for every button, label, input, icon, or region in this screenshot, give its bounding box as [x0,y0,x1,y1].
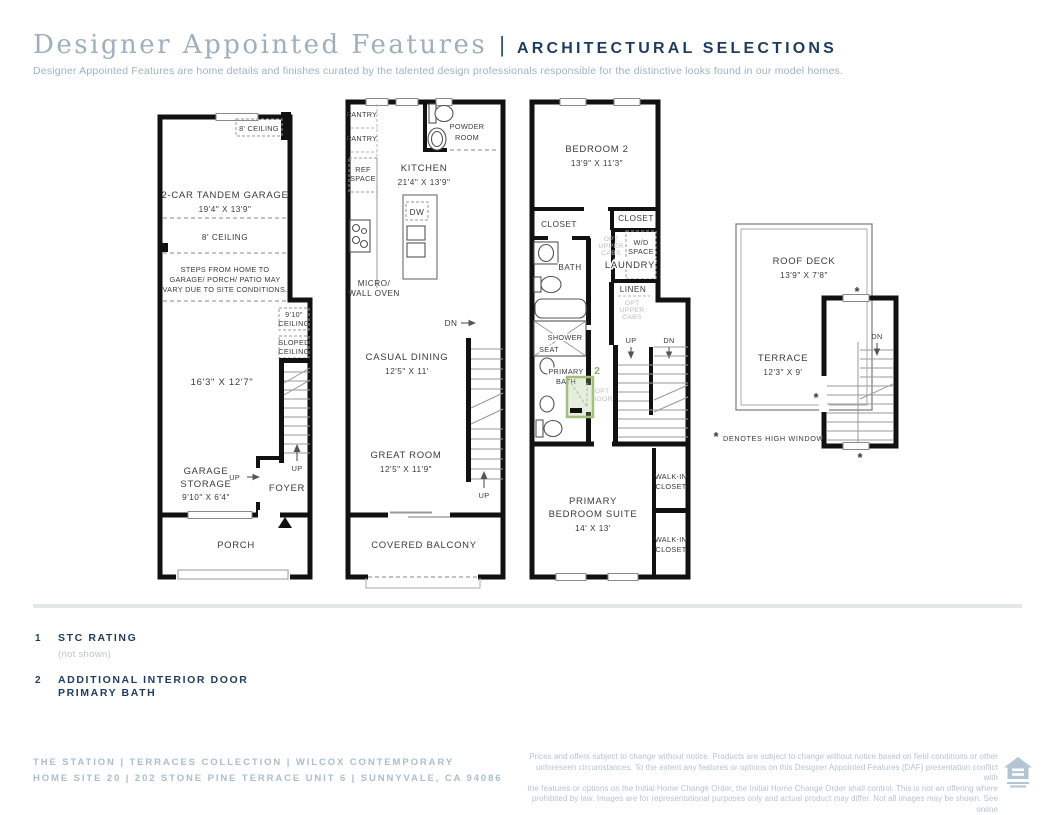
steps-note-2: GARAGE/ PORCH/ PATIO MAY [170,275,281,284]
legal-disclaimer: Prices and offers subject to change with… [520,752,998,815]
pantry-1: PANTRY [347,110,378,119]
stair-top-wall [279,358,310,363]
closet-left-gap [548,233,572,242]
laundry-label: LAUNDRY [605,260,655,271]
opt-door-label-2: DOOR [591,396,613,403]
opt-cabs-bot-2: UPPER [620,307,645,314]
legend-num-2: 2 [35,674,58,700]
pbath-sinks [540,396,554,412]
dn-label: DN [445,319,458,328]
opt-cabs-top-3: CABS [601,250,621,257]
shower-label: SHOWER [548,333,583,342]
up-arrow2-icon [481,471,488,479]
community-line-1: THE STATION | TERRACES COLLECTION | WILC… [33,755,502,771]
micro-label-2: WALL OVEN [348,289,400,298]
pantry-2: PANTRY [347,134,378,143]
floor1-plan: 8' CEILING 2-CAR TANDEM GARAGE 19'4" X 1… [160,112,310,583]
porch-step [178,570,288,579]
up-label3: UP [626,336,637,345]
balcony-label: COVERED BALCONY [371,540,477,551]
bath2-sink [539,245,554,262]
ref-2: SPACE [350,174,376,183]
opt-door-label-1: OPT [595,388,610,395]
stair2-break2 [471,409,503,424]
bath2-label: BATH [558,263,581,272]
stove [350,220,370,252]
tower-opening [819,376,829,412]
powder-label-2: ROOM [455,133,479,142]
high-window-note: DENOTES HIGH WINDOW [723,434,824,443]
casual-dining-dims: 12'5" X 11' [385,367,429,376]
disclaimer-line-1: Prices and offers subject to change with… [520,752,998,763]
kitchen-dims: 21'4" X 13'9" [398,178,451,187]
disclaimer-line-3: the features or options on the Initial H… [520,784,998,795]
high-window-star-3: * [857,450,863,465]
note-star: * [713,429,719,444]
stair3-break [654,385,688,400]
roof-deck-outer [736,224,872,410]
disclaimer-line-4: prohibited by law. Images are for repres… [520,794,998,815]
legend-sub-stc: (not shown) [58,649,137,660]
walkin-b-2: CLOSET [656,545,687,554]
seat-label: SEAT [539,345,559,354]
floor3-plan: BEDROOM 2 13'9" X 11'3" CLOSET CLOSET OP… [532,99,688,581]
wd-label-2: SPACE [628,247,654,256]
up-label2: UP [479,491,490,500]
stair-break-line2 [284,380,310,395]
suite-label-2: BEDROOM SUITE [549,509,638,520]
dn-arrow-icon [469,320,477,326]
suite-label-1: PRIMARY [569,496,617,507]
equal-housing-logo [1003,756,1033,797]
ceiling-note-top: 8' CEILING [239,124,279,133]
stair2-side-wall [466,338,471,482]
garage-label: 2-CAR TANDEM GARAGE [162,190,289,201]
community-info: THE STATION | TERRACES COLLECTION | WILC… [33,755,502,787]
room-dims: 16'3" X 12'7" [191,377,254,388]
garage-storage-dims: 9'10" X 6'4" [182,493,230,502]
walkin-a-1: WALK-IN [655,472,687,481]
walkin-divider [652,508,688,513]
great-room-label: GREAT ROOM [370,450,441,461]
wd-label-1: W/D [633,238,648,247]
legend-item-door: 2 ADDITIONAL INTERIOR DOOR PRIMARY BATH [35,674,248,700]
powder-sink [432,132,443,147]
up-dn-arrow [628,352,634,360]
bath2-toilet [541,277,561,293]
bath2-tub [535,299,586,318]
suite-windows [608,574,638,581]
closet-left-label: CLOSET [541,220,577,229]
floor4-plan: ROOF DECK 13'9" X 7'8" TERRACE 12'3" X 9… [713,224,896,465]
porch-label: PORCH [217,540,255,551]
walkin-b-1: WALK-IN [655,535,687,544]
legend-num-1: 1 [35,632,58,660]
suite-dims: 14' X 13' [575,524,611,533]
entry-door-gap [258,510,280,520]
front-window [188,512,252,519]
bedroom2-label: BEDROOM 2 [565,144,628,155]
garage-storage-2: STORAGE [180,479,231,490]
roof-deck-dims: 13'9" X 7'8" [780,271,828,280]
up-arrow-icon [294,444,301,452]
tower-window-bottom [843,443,869,450]
wall-stub [160,243,168,252]
powder-toilet [435,106,453,122]
section-divider [33,604,1022,608]
legend-label-door-1: ADDITIONAL INTERIOR DOOR [58,674,248,687]
great-room-dims: 12'5" X 11'9" [380,465,432,474]
opt-cabs-top-1: OPT [604,236,619,243]
ref-1: REF [355,165,371,174]
community-line-2: HOME SITE 20 | 202 STONE PINE TERRACE UN… [33,771,502,787]
pbath-toilet [544,421,562,437]
legend-label-stc: STC RATING [58,632,137,645]
stairs-up-label: UP [292,464,303,473]
casual-dining-label: CASUAL DINING [366,352,449,363]
dn-label4: DN [871,332,882,341]
bedroom2-dims: 13'9" X 11'3" [571,159,623,168]
walkin-a-2: CLOSET [656,482,687,491]
dn-label3: DN [663,336,674,345]
foyer-door-gap [254,468,262,502]
floor2-plan: PANTRY PANTRY REF SPACE KITCHEN 21'4" X … [347,99,503,589]
daf-floorplan-sheet: Designer Appointed Features | ARCHITECTU… [0,0,1055,815]
dn-arrow4 [874,349,880,357]
callout-2: 2 [594,365,600,377]
legend-label-door-2: PRIMARY BATH [58,687,248,700]
kitchen-label: KITCHEN [401,163,448,174]
stair-tower-walls [824,298,896,446]
stair-side-wall [279,363,284,463]
high-window-star-2: * [813,390,819,405]
steps-note-3: VARY DUE TO SITE CONDITIONS. [163,285,288,294]
entry-marker-icon [278,517,292,528]
primary-bath-1: PRIMARY [548,367,583,376]
powder-label-1: POWDER [450,122,485,131]
hall-wall [609,282,614,345]
sloped-line2: CEILING [278,347,309,356]
disclaimer-line-2: unforeseen circumstances. To the extent … [520,763,998,784]
garage-dims: 19'4" X 13'9" [199,205,252,214]
terrace-dims: 12'3" X 9' [763,368,802,377]
legend: 1 STC RATING (not shown) 2 ADDITIONAL IN… [35,632,248,714]
dw-label: DW [410,208,425,217]
bath-wall-upper [586,238,591,325]
opt-door-jamb [570,408,582,413]
ceiling-note-mid: 8' CEILING [202,233,248,242]
opt-cabs-top-2: UPPER [599,243,624,250]
opt-cabs-bot-1: OPT [625,300,640,307]
ceiling-910-line2: CEILING [278,319,309,328]
bedroom2-windows [614,99,640,106]
suite-door-gap [594,439,612,449]
micro-label-1: MICRO/ [358,279,391,288]
legend-item-stc: 1 STC RATING (not shown) [35,632,248,660]
bedroom2-door-gap [584,204,608,214]
island-sink [407,243,425,257]
roof-deck-label: ROOF DECK [773,256,836,267]
garage-storage-1: GARAGE [184,466,229,477]
kitchen-windows [436,99,452,106]
ceiling-910-line1: 9'10" [285,310,303,319]
stair2-break [471,393,503,408]
stair3-wall-left [613,345,618,444]
steps-note-1: STEPS FROM HOME TO [181,265,270,274]
dn-arrow [666,352,672,360]
linen-label: LINEN [620,285,647,294]
terrace-label: TERRACE [758,353,808,364]
opt-cabs-bot-3: CABS [622,314,642,321]
stair3-divider [649,347,653,415]
sloped-line1: SLOPED [278,338,309,347]
foyer-label: FOYER [269,483,305,494]
closet-right-label: CLOSET [618,214,654,223]
